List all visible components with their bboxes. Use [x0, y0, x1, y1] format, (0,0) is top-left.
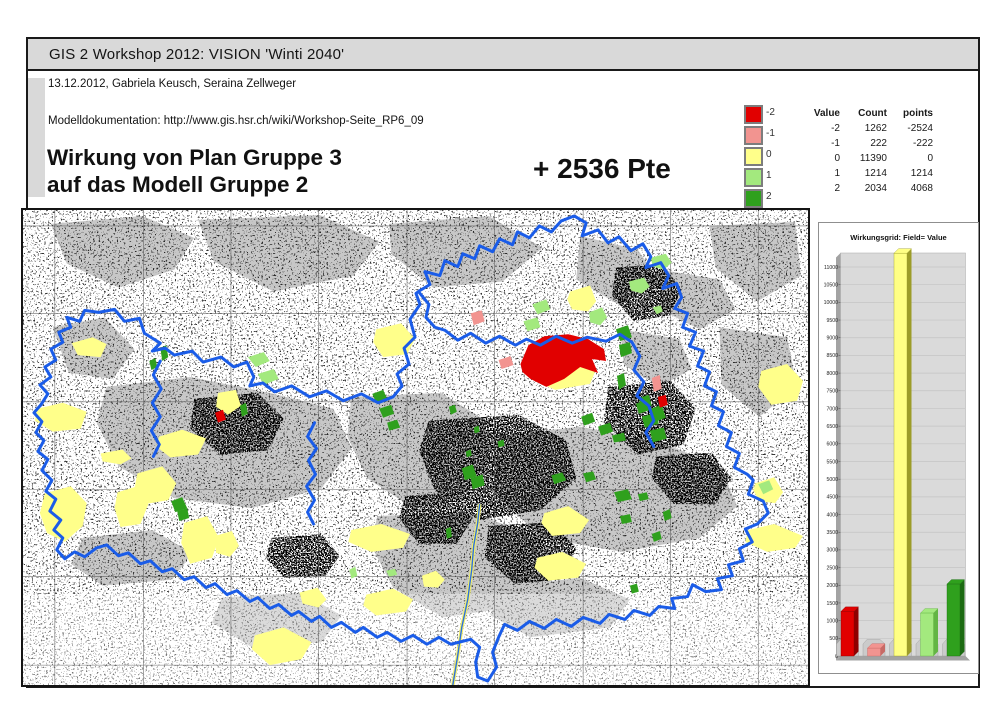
- chart-tick-label: 3000: [826, 548, 838, 554]
- legend-label: 1: [766, 170, 772, 181]
- chart-tick-label: 1000: [826, 618, 838, 624]
- legend-swatch: [744, 147, 763, 166]
- chart-bar: [894, 253, 907, 656]
- south-light-area: [23, 594, 808, 685]
- workshop-title: GIS 2 Workshop 2012: VISION 'Winti 2040': [28, 39, 978, 70]
- chart-tick-label: 500: [829, 636, 838, 642]
- legend-label: 2: [766, 191, 772, 202]
- chart-tick-label: 7500: [826, 389, 838, 395]
- legend-label: 0: [766, 149, 772, 160]
- page-title-line1: Wirkung von Plan Gruppe 3: [47, 144, 342, 171]
- authors-line: 13.12.2012, Gabriela Keusch, Seraina Zel…: [48, 78, 296, 90]
- table-row: 112141214: [790, 166, 933, 181]
- legend-swatch: [744, 105, 763, 124]
- total-points-badge: + 2536 Pte: [533, 153, 671, 185]
- chart-bar-side: [960, 580, 965, 656]
- table-row: 220344068: [790, 181, 933, 196]
- city-label: WINTERTHUR: [451, 434, 506, 440]
- value-histogram: Wirkungsgrid: Field= Value 0500100015002…: [819, 223, 978, 673]
- chart-bar: [841, 611, 854, 656]
- chart-tick-label: 5500: [826, 459, 838, 465]
- chart-tick-label: 4000: [826, 512, 838, 518]
- chart-tick-label: 1500: [826, 601, 838, 607]
- chart-left-wall: [836, 253, 841, 661]
- chart-tick-label: 4500: [826, 495, 838, 501]
- page-title: Wirkung von Plan Gruppe 3 auf das Modell…: [47, 144, 342, 198]
- chart-tick-label: 3500: [826, 530, 838, 536]
- chart-tick-label: 8500: [826, 353, 838, 359]
- chart-tick-label: 6000: [826, 442, 838, 448]
- chart-tick-label: 8000: [826, 371, 838, 377]
- table-header-row: ValueCountpoints: [790, 106, 933, 121]
- legend-label: -1: [766, 128, 775, 139]
- chart-tick-label: 2500: [826, 565, 838, 571]
- chart-panel: Wirkungsgrid: Field= Value 0500100015002…: [818, 222, 979, 674]
- page-title-line2: auf das Modell Gruppe 2: [47, 171, 342, 198]
- report-page: GIS 2 Workshop 2012: VISION 'Winti 2040'…: [0, 0, 1000, 707]
- chart-plot: 0500100015002000250030003500400045005000…: [824, 249, 970, 661]
- chart-title: Wirkungsgrid: Field= Value: [850, 233, 946, 242]
- legend-label: -2: [766, 107, 775, 118]
- chart-tick-label: 11000: [824, 265, 838, 271]
- map-canvas: WINTERTHUR: [21, 208, 810, 687]
- documentation-line: Modelldokumentation: http://www.gis.hsr.…: [48, 115, 424, 127]
- chart-bar: [947, 584, 960, 656]
- chart-tick-label: 9500: [826, 318, 838, 324]
- chart-tick-label: 6500: [826, 424, 838, 430]
- table-row: 0113900: [790, 151, 933, 166]
- chart-bar-side: [907, 249, 912, 656]
- title-band: GIS 2 Workshop 2012: VISION 'Winti 2040': [28, 39, 978, 71]
- chart-tick-label: 10000: [824, 300, 839, 306]
- header-accent-strip: [28, 78, 45, 197]
- chart-tick-label: 7000: [826, 406, 838, 412]
- chart-bar-side: [934, 609, 939, 656]
- chart-bar: [868, 648, 881, 656]
- topo-map: WINTERTHUR: [23, 210, 808, 685]
- chart-bar: [921, 613, 934, 656]
- chart-tick-label: 5000: [826, 477, 838, 483]
- chart-floor: [836, 656, 970, 661]
- table-row: -1222-222: [790, 136, 933, 151]
- chart-tick-label: 9000: [826, 336, 838, 342]
- value-count-points-table: ValueCountpoints-21262-2524-1222-2220113…: [790, 106, 933, 196]
- chart-bar-side: [854, 607, 859, 656]
- chart-tick-label: 10500: [824, 282, 839, 288]
- chart-tick-label: 2000: [826, 583, 838, 589]
- table-row: -21262-2524: [790, 121, 933, 136]
- legend-swatch: [744, 126, 763, 145]
- legend-swatch: [744, 189, 763, 208]
- legend-swatch: [744, 168, 763, 187]
